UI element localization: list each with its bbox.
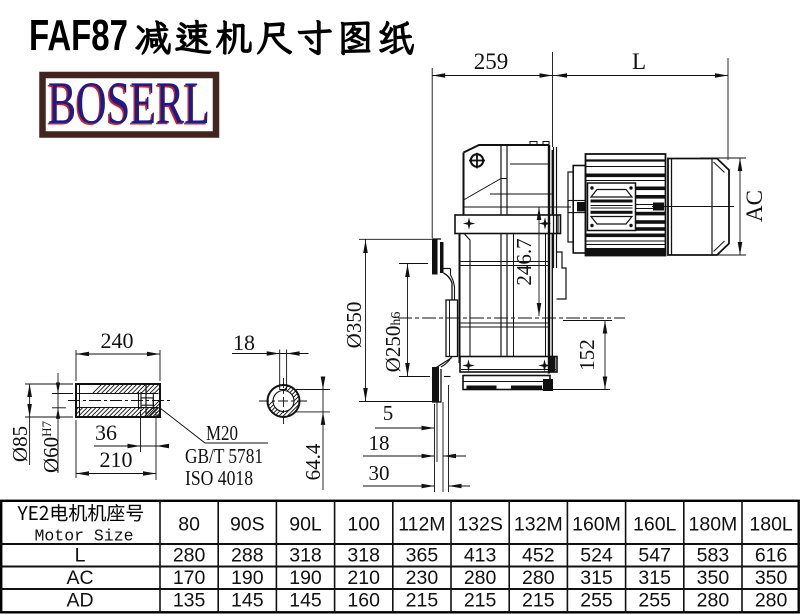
svg-text:132M: 132M <box>514 514 563 536</box>
svg-text:413: 413 <box>464 545 497 567</box>
svg-text:547: 547 <box>638 545 671 567</box>
svg-text:112M: 112M <box>398 514 445 536</box>
svg-text:AC: AC <box>742 190 767 222</box>
svg-text:Ø60H7: Ø60H7 <box>39 420 63 473</box>
svg-text:215: 215 <box>522 590 555 612</box>
svg-text:L: L <box>632 49 646 74</box>
svg-text:AC: AC <box>66 567 93 589</box>
svg-text:288: 288 <box>231 545 264 567</box>
svg-text:240: 240 <box>101 328 134 353</box>
svg-text:90S: 90S <box>230 514 265 536</box>
svg-text:616: 616 <box>755 545 788 567</box>
svg-text:FAF87: FAF87 <box>29 11 128 60</box>
svg-text:L: L <box>75 545 86 567</box>
svg-text:36: 36 <box>95 420 117 445</box>
svg-text:215: 215 <box>464 590 497 612</box>
svg-text:215: 215 <box>406 590 439 612</box>
svg-text:350: 350 <box>697 567 730 589</box>
svg-text:255: 255 <box>580 590 613 612</box>
svg-text:GB/T 5781: GB/T 5781 <box>185 444 263 468</box>
svg-text:Motor Size: Motor Size <box>34 527 133 546</box>
svg-text:280: 280 <box>464 567 497 589</box>
svg-text:210: 210 <box>347 567 380 589</box>
svg-text:524: 524 <box>580 545 613 567</box>
svg-text:132S: 132S <box>457 514 503 536</box>
svg-text:180L: 180L <box>749 514 793 536</box>
svg-text:18: 18 <box>233 330 255 355</box>
svg-text:230: 230 <box>406 567 439 589</box>
svg-text:160L: 160L <box>633 514 677 536</box>
svg-text:M20: M20 <box>206 421 238 445</box>
svg-text:100: 100 <box>347 514 380 536</box>
svg-text:452: 452 <box>522 545 555 567</box>
svg-text:259: 259 <box>474 49 509 74</box>
svg-text:90L: 90L <box>289 514 322 536</box>
svg-text:365: 365 <box>406 545 439 567</box>
svg-text:280: 280 <box>522 567 555 589</box>
svg-text:315: 315 <box>580 567 613 589</box>
svg-text:145: 145 <box>289 590 322 612</box>
svg-text:280: 280 <box>697 590 730 612</box>
svg-text:Ø250h6: Ø250h6 <box>381 312 405 373</box>
svg-text:318: 318 <box>289 545 322 567</box>
svg-text:BOSERL: BOSERL <box>48 70 210 136</box>
svg-text:64.4: 64.4 <box>301 443 325 480</box>
svg-text:5: 5 <box>383 401 394 425</box>
svg-text:160: 160 <box>347 590 380 612</box>
svg-text:30: 30 <box>369 461 390 485</box>
svg-text:AD: AD <box>66 590 93 612</box>
svg-text:246.7: 246.7 <box>512 238 536 285</box>
svg-text:152: 152 <box>575 339 599 371</box>
svg-text:280: 280 <box>755 590 788 612</box>
svg-text:255: 255 <box>638 590 671 612</box>
svg-text:145: 145 <box>231 590 264 612</box>
svg-text:315: 315 <box>638 567 671 589</box>
svg-text:170: 170 <box>173 567 206 589</box>
svg-text:350: 350 <box>755 567 788 589</box>
svg-text:ISO 4018: ISO 4018 <box>185 466 253 490</box>
svg-text:Ø350: Ø350 <box>342 302 366 349</box>
svg-text:210: 210 <box>100 447 133 472</box>
svg-text:280: 280 <box>173 545 206 567</box>
svg-text:180M: 180M <box>689 514 738 536</box>
svg-text:Ø85: Ø85 <box>8 426 32 462</box>
svg-text:190: 190 <box>289 567 322 589</box>
svg-text:583: 583 <box>697 545 730 567</box>
svg-text:18: 18 <box>369 431 390 455</box>
svg-text:80: 80 <box>178 514 200 536</box>
svg-text:318: 318 <box>347 545 380 567</box>
svg-text:160M: 160M <box>572 514 621 536</box>
svg-text:135: 135 <box>173 590 206 612</box>
svg-text:190: 190 <box>231 567 264 589</box>
